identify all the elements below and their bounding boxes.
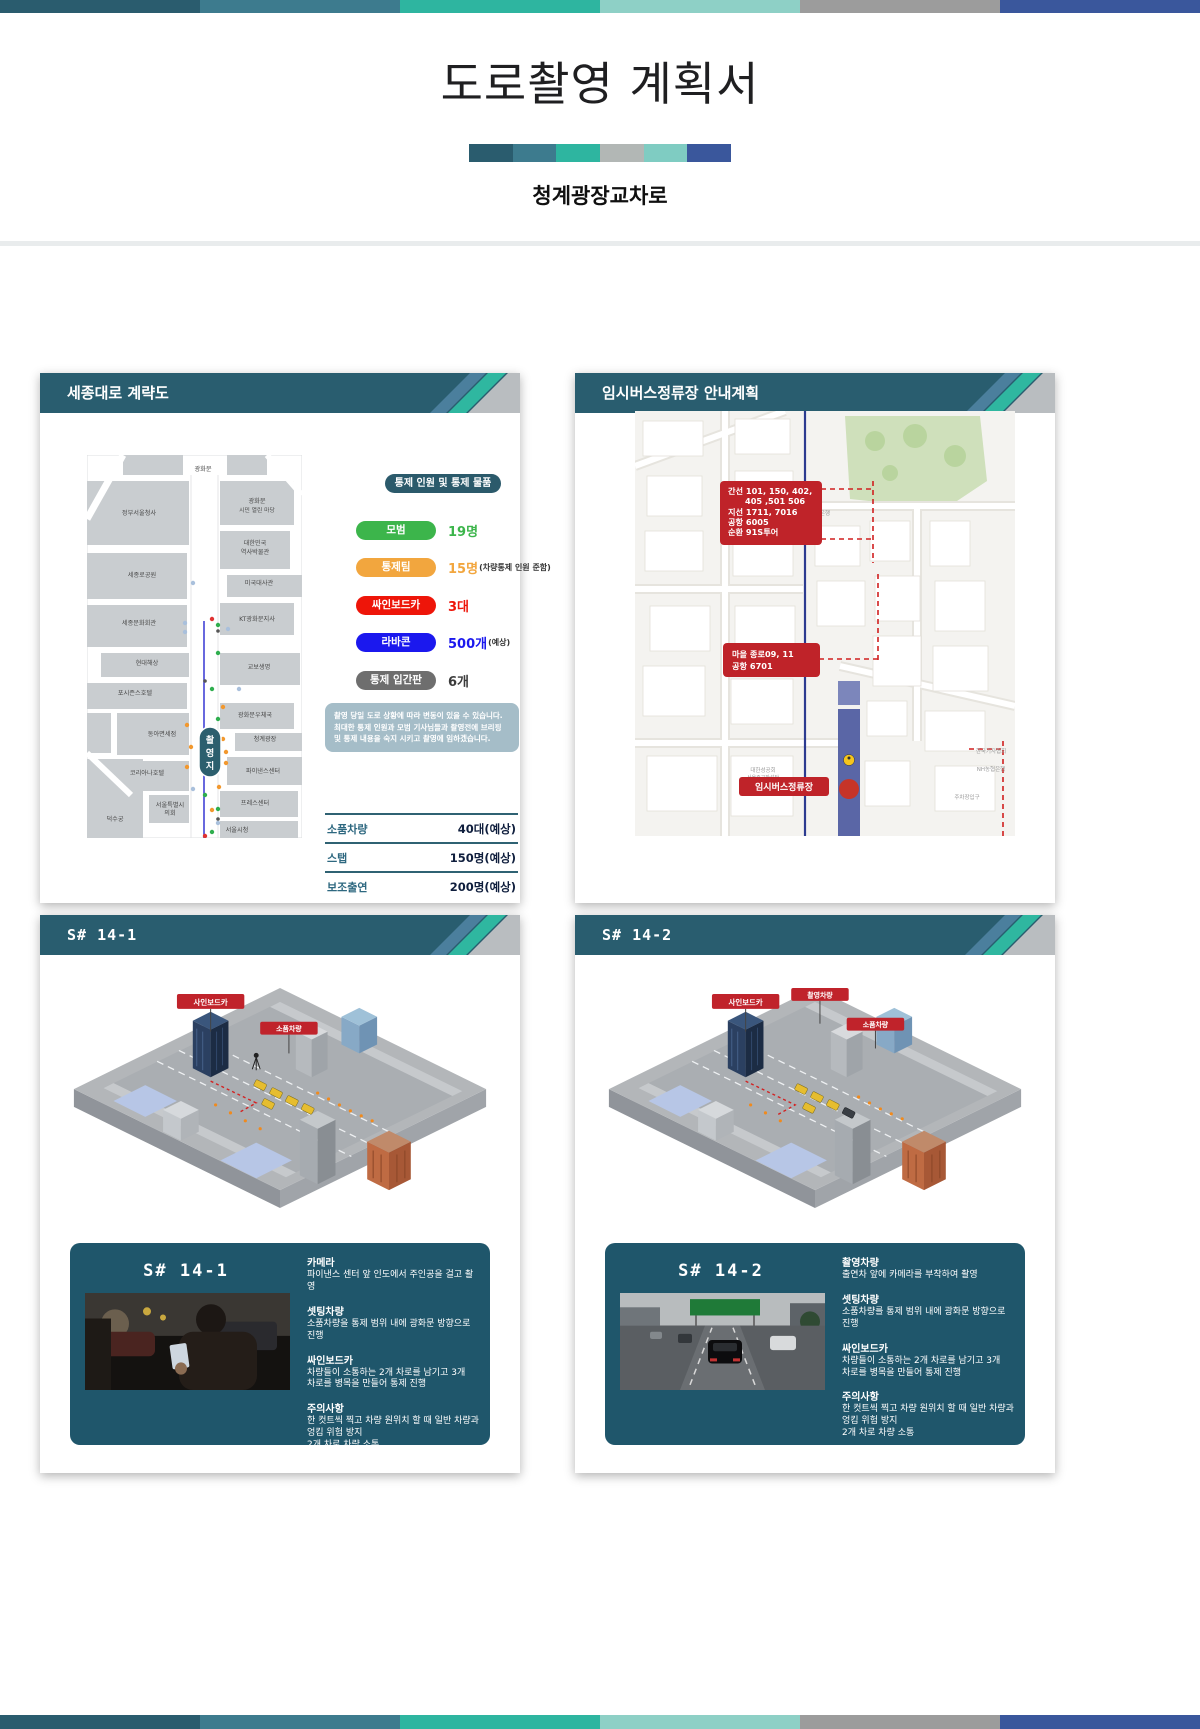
table-value: 200명(예상) (450, 879, 516, 895)
bus-stop-guide-map: 신한은행 대한성공회 서울주교좌성당 한국기자협회 NH농협은행 주차장입구 간… (635, 411, 1015, 836)
svg-text:촬영차량: 촬영차량 (807, 990, 833, 999)
panel4-header: S# 14-2 (575, 915, 1055, 955)
sejongdaero-street-map: 광화문 정부서울청사 광화문 시민 열린 마당 대한민국 역사박물관 세종로공원… (87, 455, 302, 838)
svg-text:소품차량: 소품차량 (276, 1024, 302, 1033)
panel-scene-14-2: S# 14-2 (575, 915, 1055, 1473)
panel-sejongdaero-map: 세종대로 계략도 (40, 373, 520, 903)
panel1-header: 세종대로 계략도 (40, 373, 520, 413)
svg-text:광화문: 광화문 (248, 498, 265, 505)
scene-photo-driving (620, 1293, 825, 1390)
svg-text:KT광화문지사: KT광화문지사 (239, 615, 275, 623)
panel3-header: S# 14-1 (40, 915, 520, 955)
bus-stop-icon (844, 755, 855, 766)
svg-text:덕수궁: 덕수궁 (106, 816, 123, 823)
panel-temporary-bus-stop: 임시버스정류장 안내계획 (575, 373, 1055, 903)
svg-text:주차장입구: 주차장입구 (954, 793, 979, 801)
svg-text:NH농협은행: NH농협은행 (977, 765, 1006, 773)
svg-text:간선 101, 150, 402,: 간선 101, 150, 402, (728, 486, 812, 496)
bus-route-box-1: 간선 101, 150, 402, 405 ,501 506 지선 1711, … (720, 481, 822, 545)
isometric-scene-14-2: 사인보드카 촬영차량 소품차량 (597, 967, 1033, 1229)
note-section: 카메라 파이낸스 센터 앞 인도에서 주인공을 걸고 촬영 (307, 1254, 479, 1294)
road-band (838, 709, 860, 836)
note-section: 싸인보드카 차량들이 소통하는 2개 차로를 남기고 3개 차로를 병목을 만들… (307, 1352, 479, 1392)
filming-site-badge: 촬 영 지 (199, 727, 221, 777)
panel2-header: 임시버스정류장 안내계획 (575, 373, 1055, 413)
scene-notes: 촬영차량 출연차 앞에 카메라를 부착하여 촬영 셋팅차량 소품차량를 통제 범… (842, 1254, 1014, 1449)
legend-pill: 통제 입간판 (356, 671, 436, 690)
panel4-header-label: S# 14-2 (602, 926, 672, 944)
svg-text:교보생명: 교보생명 (248, 663, 271, 671)
page-subtitle: 청계광장교차로 (0, 180, 1200, 210)
legend-row: 통제 입간판 6개 (356, 671, 470, 690)
svg-text:광화문: 광화문 (194, 466, 211, 473)
svg-text:코리아나호텔: 코리아나호텔 (130, 769, 164, 777)
bottom-color-bar (0, 1715, 1200, 1729)
svg-text:지선 1711, 7016: 지선 1711, 7016 (728, 507, 798, 517)
svg-text:대한성공회: 대한성공회 (750, 766, 775, 774)
panel2-header-label: 임시버스정류장 안내계획 (602, 384, 759, 402)
legend-row: 싸인보드카 3대 (356, 596, 470, 615)
legend-suffix: (차량통제 인원 준함) (479, 562, 551, 573)
legend-pill: 모범 (356, 521, 436, 540)
stop-location-marker (839, 779, 859, 799)
section-divider (0, 241, 1200, 246)
svg-text:임시버스정류장: 임시버스정류장 (755, 781, 814, 793)
svg-text:의회: 의회 (164, 809, 175, 817)
svg-text:한국기자협회: 한국기자협회 (976, 747, 1006, 755)
legend-value: 500개 (448, 633, 487, 652)
brick-building (902, 1131, 946, 1190)
header-stripes-decoration (925, 915, 1055, 955)
table-label: 보조출연 (327, 879, 367, 895)
svg-text:포시즌스호텔: 포시즌스호텔 (118, 689, 152, 697)
svg-text:광화문우체국: 광화문우체국 (238, 711, 272, 719)
table-row: 소품차량 40대(예상) (325, 813, 518, 842)
scene-notes: 카메라 파이낸스 센터 앞 인도에서 주인공을 걸고 촬영 셋팅차량 소품차량을… (307, 1254, 479, 1461)
svg-text:공항 6005: 공항 6005 (728, 517, 769, 527)
note-box: 촬영 당일 도로 상황에 따라 변동이 있을 수 있습니다. 최대한 통제 인원… (325, 703, 519, 752)
svg-text:마을 종로09, 11: 마을 종로09, 11 (732, 649, 794, 659)
brick-building (367, 1131, 411, 1190)
header-stripes-decoration (925, 373, 1055, 413)
svg-text:정부서울청사: 정부서울청사 (122, 509, 156, 517)
note-section: 셋팅차량 소품차량를 통제 범위 내에 광화문 방향으로 진행 (842, 1291, 1014, 1331)
resources-table: 소품차량 40대(예상) 스탭 150명(예상) 보조출연 200명(예상) (325, 813, 518, 900)
legend-suffix: (예상) (488, 637, 510, 648)
table-value: 40대(예상) (458, 821, 516, 837)
legend-pill: 라바콘 (356, 633, 436, 652)
table-value: 150명(예상) (450, 850, 516, 866)
legend-row: 라바콘 500개 (예상) (356, 633, 510, 652)
bus-route-box-2: 마을 종로09, 11 공항 6701 (723, 643, 820, 677)
svg-text:파이낸스센터: 파이낸스센터 (246, 767, 280, 775)
scene-photo-pedestrian (85, 1293, 290, 1390)
legend-row: 모범 19명 (356, 521, 479, 540)
svg-text:세종로공원: 세종로공원 (128, 571, 157, 579)
svg-text:동아면세점: 동아면세점 (148, 730, 176, 738)
gray-tower-top (831, 1024, 863, 1078)
panel1-header-label: 세종대로 계략도 (67, 384, 169, 402)
table-row: 스탭 150명(예상) (325, 842, 518, 871)
card-title: S# 14-2 (605, 1261, 837, 1281)
svg-text:청계광장: 청계광장 (254, 735, 277, 743)
legend-title: 통제 인원 및 통제 물품 (385, 474, 501, 493)
document-page: 도로촬영 계획서 청계광장교차로 세종대로 계략도 (0, 0, 1200, 1729)
svg-text:소품차량: 소품차량 (863, 1020, 889, 1029)
road-band-light (838, 681, 860, 705)
legend-pill: 싸인보드카 (356, 596, 436, 615)
note-section: 주의사항 한 컷트씩 찍고 차량 원위치 할 때 일반 차량과 엉킴 위험 방지… (307, 1400, 479, 1452)
note-section: 주의사항 한 컷트씩 찍고 차량 원위치 할 때 일반 차량과 엉킴 위험 방지… (842, 1388, 1014, 1440)
temporary-stop-label: 임시버스정류장 (739, 777, 829, 796)
svg-text:405 ,501 506: 405 ,501 506 (745, 496, 805, 506)
top-color-bar (0, 0, 1200, 13)
legend-value: 3대 (448, 596, 469, 615)
card-title: S# 14-1 (70, 1261, 302, 1281)
legend-value: 6개 (448, 671, 469, 690)
svg-text:순환 91S투어: 순환 91S투어 (728, 527, 778, 537)
scene-info-card-14-1: S# 14-1 카메라 파이낸스 센터 앞 인도에서 주인공을 걸고 촬영 (70, 1243, 490, 1445)
isometric-scene-14-1: 사인보드카 소품차량 (62, 967, 498, 1229)
header-stripes-decoration (390, 915, 520, 955)
table-label: 소품차량 (327, 821, 367, 837)
panel3-header-label: S# 14-1 (67, 926, 137, 944)
gray-tower-bottom (300, 1111, 336, 1184)
svg-text:역사박물관: 역사박물관 (241, 548, 270, 556)
note-section: 촬영차량 출연차 앞에 카메라를 부착하여 촬영 (842, 1254, 1014, 1282)
svg-text:사인보드카: 사인보드카 (729, 997, 763, 1007)
note-section: 셋팅차량 소품차량을 통제 범위 내에 광화문 방향으로 진행 (307, 1303, 479, 1343)
svg-text:공항 6701: 공항 6701 (732, 661, 773, 671)
scene-info-card-14-2: S# 14-2 (605, 1243, 1025, 1445)
page-title: 도로촬영 계획서 (0, 48, 1200, 114)
table-label: 스탭 (327, 850, 347, 866)
header-stripes-decoration (390, 373, 520, 413)
panel-scene-14-1: S# 14-1 (40, 915, 520, 1473)
svg-text:세종문화회관: 세종문화회관 (122, 619, 156, 627)
svg-text:프레스센터: 프레스센터 (241, 799, 269, 807)
legend-value: 15명 (448, 558, 478, 577)
svg-text:대한민국: 대한민국 (244, 539, 267, 547)
svg-text:영: 영 (206, 747, 214, 759)
table-row: 보조출연 200명(예상) (325, 871, 518, 900)
svg-text:촬: 촬 (206, 734, 215, 746)
svg-text:서울시청: 서울시청 (226, 826, 249, 834)
glass-building (341, 1008, 377, 1054)
svg-text:현대해상: 현대해상 (136, 659, 159, 667)
svg-text:지: 지 (206, 760, 214, 772)
legend-row: 통제팀 15명 (차량통제 인원 준함) (356, 558, 551, 577)
legend-pill: 통제팀 (356, 558, 436, 577)
note-section: 싸인보드카 차량들이 소통하는 2개 차로를 남기고 3개 차로를 병목을 만들… (842, 1340, 1014, 1380)
gray-tower-bottom (835, 1111, 871, 1184)
title-accent-bar (469, 144, 731, 162)
svg-text:미국대사관: 미국대사관 (245, 579, 274, 587)
legend-value: 19명 (448, 521, 478, 540)
svg-text:서울특별시: 서울특별시 (156, 801, 184, 809)
svg-text:시민 열린 마당: 시민 열린 마당 (239, 506, 275, 514)
svg-text:사인보드카: 사인보드카 (194, 997, 228, 1007)
